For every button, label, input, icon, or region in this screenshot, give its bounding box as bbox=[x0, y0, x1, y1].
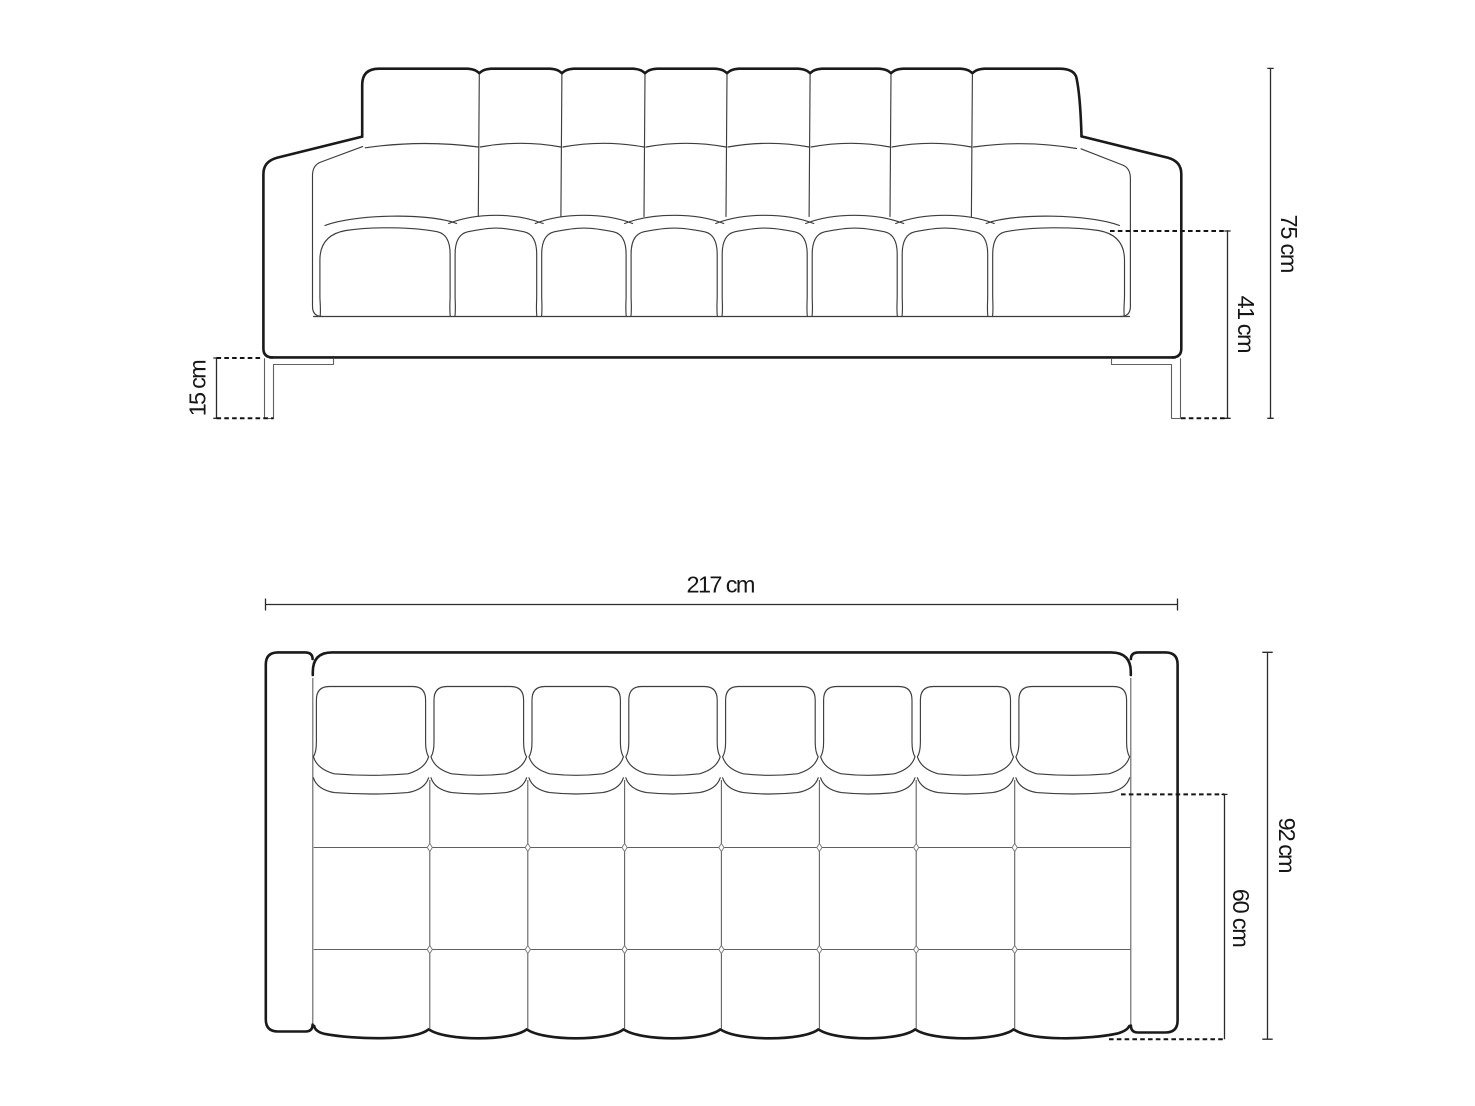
svg-text:41 cm: 41 cm bbox=[1233, 296, 1259, 354]
svg-text:75 cm: 75 cm bbox=[1276, 215, 1302, 274]
svg-text:92 cm: 92 cm bbox=[1274, 818, 1300, 874]
svg-text:60 cm: 60 cm bbox=[1228, 889, 1254, 948]
svg-text:15 cm: 15 cm bbox=[184, 359, 210, 416]
svg-text:217 cm: 217 cm bbox=[687, 572, 756, 598]
